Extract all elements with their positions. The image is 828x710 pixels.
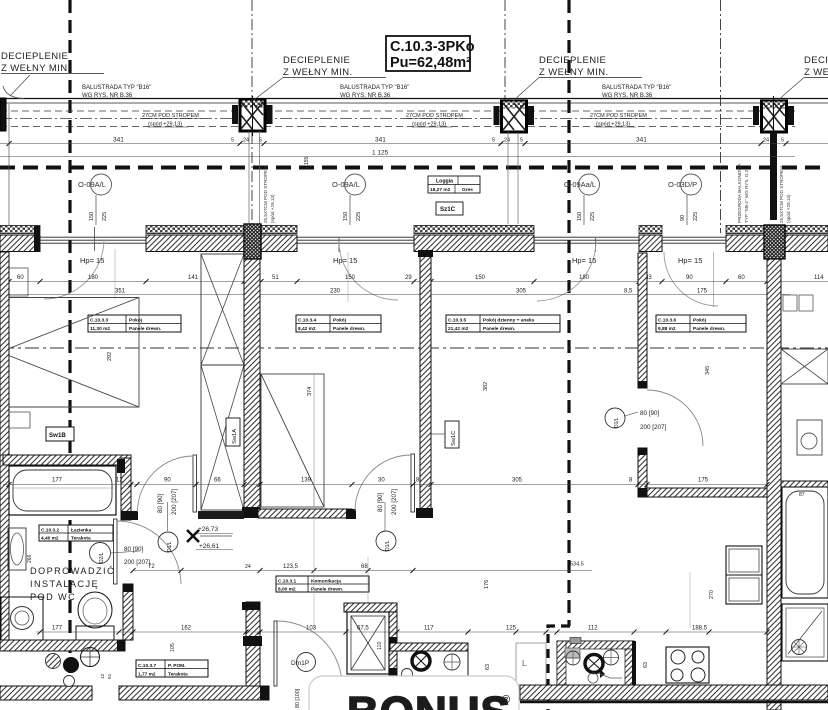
svg-text:8,5: 8,5 (624, 289, 633, 295)
svg-text:O-09A/L: O-09A/L (78, 180, 106, 189)
svg-text:Sw1C: Sw1C (451, 431, 457, 446)
svg-text:PRZEGRODA BALKONOWA: PRZEGRODA BALKONOWA (737, 163, 742, 223)
svg-text:305: 305 (512, 478, 523, 484)
svg-text:24: 24 (243, 138, 249, 144)
svg-text:200 [207]: 200 [207] (171, 488, 178, 515)
svg-text:63: 63 (643, 662, 649, 668)
svg-text:110: 110 (377, 642, 383, 650)
svg-text:67,5: 67,5 (357, 626, 369, 632)
svg-text:180: 180 (579, 275, 590, 281)
svg-text:345: 345 (705, 366, 711, 375)
svg-text:341: 341 (113, 137, 124, 144)
svg-text:63: 63 (485, 664, 491, 670)
svg-text:Hp= 15: Hp= 15 (572, 256, 596, 265)
svg-text:C.10.3.5: C.10.3.5 (448, 318, 466, 324)
svg-text:1 125: 1 125 (372, 150, 389, 157)
svg-text:9,88 m2: 9,88 m2 (658, 326, 676, 332)
svg-text:27CM POD STROPEM: 27CM POD STROPEM (142, 113, 199, 119)
svg-text:200 [207]: 200 [207] (124, 559, 151, 566)
svg-text:175: 175 (697, 289, 708, 295)
svg-text:180: 180 (88, 275, 99, 281)
svg-text:DECIEPLENIE: DECIEPLENIE (1, 51, 68, 62)
svg-text:123,5: 123,5 (283, 564, 299, 570)
svg-text:BALUSTRADA TYP "B16": BALUSTRADA TYP "B16" (602, 85, 671, 91)
svg-text:177: 177 (52, 626, 63, 632)
svg-text:(spód +29,13): (spód +29,13) (596, 122, 630, 128)
svg-text:112: 112 (588, 626, 598, 632)
svg-text:(spód +29,13): (spód +29,13) (412, 122, 446, 128)
svg-text:162: 162 (181, 626, 192, 632)
svg-text:Terakota: Terakota (168, 671, 188, 677)
svg-text:BALUSTRADA TYP "B16": BALUSTRADA TYP "B16" (340, 85, 409, 91)
svg-text:292: 292 (107, 352, 113, 361)
svg-text:Łazienka: Łazienka (71, 527, 92, 533)
svg-text:27CM POD STROPEM: 27CM POD STROPEM (590, 113, 647, 119)
svg-text:(spód +29,13): (spód +29,13) (270, 194, 275, 223)
svg-text:Pokój dzienny + aneks: Pokój dzienny + aneks (483, 318, 535, 324)
svg-text:11,30 m2: 11,30 m2 (90, 326, 110, 332)
svg-text:Z WEŁNY MIN.: Z WEŁNY MIN. (1, 63, 71, 74)
svg-text:Hp= 15: Hp= 15 (678, 256, 702, 265)
svg-text:51: 51 (107, 673, 113, 679)
svg-text:Panele drewn.: Panele drewn. (483, 326, 515, 332)
svg-text:®: ® (502, 694, 510, 706)
svg-text:BALUSTRADA TYP "B16": BALUSTRADA TYP "B16" (82, 85, 151, 91)
svg-text:C.10.3.3: C.10.3.3 (90, 318, 108, 324)
svg-text:Dm1P: Dm1P (291, 660, 309, 667)
svg-text:175: 175 (698, 478, 709, 484)
svg-text:D2/L: D2/L (99, 552, 105, 563)
svg-text:117: 117 (424, 626, 434, 632)
svg-text:12: 12 (100, 673, 106, 679)
svg-text:Z WEŁNY MIN.: Z WEŁNY MIN. (283, 67, 353, 78)
svg-text:TYP "SB-2" WG RYS. D.2: TYP "SB-2" WG RYS. D.2 (744, 169, 749, 223)
svg-text:90: 90 (164, 478, 171, 484)
svg-text:90: 90 (680, 215, 686, 221)
svg-text:Loggia: Loggia (436, 179, 453, 185)
svg-text:188,5: 188,5 (692, 626, 708, 632)
svg-text:Panele drewn.: Panele drewn. (311, 586, 343, 592)
svg-text:150: 150 (345, 275, 356, 281)
svg-text:C.10.3.6: C.10.3.6 (658, 318, 676, 324)
svg-text:27CM POD STROPEM: 27CM POD STROPEM (406, 113, 463, 119)
svg-text:139: 139 (301, 478, 312, 484)
svg-text:Hp= 15: Hp= 15 (80, 256, 104, 265)
svg-text:341: 341 (636, 137, 647, 144)
svg-text:351: 351 (115, 289, 126, 295)
svg-text:D1/L: D1/L (385, 540, 391, 551)
svg-text:150: 150 (89, 212, 95, 221)
svg-text:225: 225 (356, 212, 362, 221)
svg-text:Pokój: Pokój (129, 318, 142, 324)
svg-text:O-09A/L: O-09A/L (332, 180, 360, 189)
svg-text:230: 230 (330, 289, 341, 295)
svg-text:+26,61: +26,61 (199, 543, 219, 550)
svg-text:Z WEŁNY MIN.: Z WEŁNY MIN. (539, 67, 609, 78)
svg-text:1,77 m2: 1,77 m2 (138, 671, 156, 677)
svg-text:(spód +29,13): (spód +29,13) (786, 194, 791, 223)
svg-text:C.10.3.2: C.10.3.2 (41, 527, 59, 533)
svg-text:5: 5 (231, 138, 234, 144)
svg-text:25,5X7CM POD STROPEM: 25,5X7CM POD STROPEM (263, 166, 268, 223)
svg-text:305: 305 (516, 289, 527, 295)
svg-text:Terakota: Terakota (71, 535, 91, 541)
svg-text:BONUS: BONUS (347, 688, 511, 710)
svg-text:18,27 m2: 18,27 m2 (430, 187, 451, 193)
svg-text:90: 90 (686, 275, 693, 281)
svg-text:24: 24 (245, 564, 251, 570)
svg-text:Pokój: Pokój (333, 318, 346, 324)
svg-text:Sw1B: Sw1B (49, 432, 66, 439)
svg-text:8,42 m2: 8,42 m2 (298, 326, 316, 332)
svg-text:80 [90]: 80 [90] (640, 410, 660, 417)
svg-text:L: L (522, 658, 527, 668)
svg-text:29: 29 (405, 275, 412, 281)
svg-text:5: 5 (492, 138, 495, 144)
svg-text:Gres: Gres (462, 187, 473, 193)
svg-text:C.10.3.1: C.10.3.1 (278, 578, 296, 584)
svg-text:(spód +29,13): (spód +29,13) (148, 122, 182, 128)
svg-text:DECIEPLENIE: DECIEPLENIE (539, 55, 606, 66)
svg-text:51: 51 (272, 275, 279, 281)
svg-text:+26,73: +26,73 (198, 526, 218, 533)
svg-text:68: 68 (361, 564, 368, 570)
svg-text:5: 5 (781, 138, 784, 144)
svg-text:266: 266 (27, 554, 33, 563)
svg-text:DECIEPLENIE: DECIEPLENIE (804, 55, 828, 66)
svg-text:341: 341 (375, 137, 386, 144)
svg-text:176: 176 (484, 580, 490, 589)
svg-text:103: 103 (306, 626, 317, 632)
svg-text:374: 374 (307, 387, 313, 396)
svg-text:INSTALACJĘ: INSTALACJĘ (30, 579, 99, 589)
svg-text:12: 12 (116, 478, 123, 484)
svg-text:270: 270 (709, 590, 715, 599)
svg-text:Sz1C: Sz1C (440, 206, 456, 213)
svg-text:P. POM.: P. POM. (168, 663, 186, 669)
svg-text:225: 225 (102, 212, 108, 221)
svg-text:382: 382 (483, 382, 489, 391)
svg-text:Panele drewn.: Panele drewn. (333, 326, 365, 332)
svg-text:80 [90]: 80 [90] (157, 493, 164, 513)
svg-text:80 [90]: 80 [90] (377, 492, 384, 512)
svg-text:Hp= 15: Hp= 15 (333, 256, 357, 265)
svg-text:66: 66 (214, 478, 221, 484)
svg-text:25,5X7CM POD STROPEM: 25,5X7CM POD STROPEM (779, 166, 784, 223)
svg-text:O-09Aa/L: O-09Aa/L (564, 180, 596, 189)
svg-text:114: 114 (814, 275, 824, 281)
svg-text:72: 72 (148, 564, 155, 570)
svg-text:125: 125 (506, 626, 517, 632)
svg-text:80 [90]: 80 [90] (124, 546, 144, 553)
svg-text:Z WEŁNY: Z WEŁNY (804, 67, 828, 78)
svg-text:225: 225 (590, 212, 596, 221)
svg-text:534,5: 534,5 (570, 562, 584, 568)
svg-text:C.10.3.7: C.10.3.7 (138, 663, 156, 669)
svg-text:5: 5 (520, 138, 523, 144)
svg-text:DECIEPLENIE: DECIEPLENIE (283, 55, 350, 66)
svg-text:155: 155 (304, 156, 310, 165)
svg-text:30: 30 (378, 478, 385, 484)
svg-text:Panele drewn.: Panele drewn. (129, 326, 161, 332)
svg-text:C.10.3-3PKo: C.10.3-3PKo (390, 39, 475, 55)
svg-text:150: 150 (577, 212, 583, 221)
svg-text:225: 225 (693, 212, 699, 221)
svg-text:150: 150 (475, 275, 486, 281)
svg-text:4,40 m2: 4,40 m2 (41, 535, 59, 541)
svg-text:Pu=62,48m²: Pu=62,48m² (390, 55, 471, 71)
svg-text:60: 60 (17, 275, 24, 281)
svg-text:D1/L: D1/L (167, 541, 173, 552)
svg-text:21,42 m2: 21,42 m2 (448, 326, 469, 332)
svg-text:177: 177 (52, 478, 63, 484)
svg-text:C.10.3.4: C.10.3.4 (298, 318, 316, 324)
svg-text:24: 24 (504, 138, 510, 144)
svg-text:60: 60 (738, 275, 745, 281)
svg-text:D1/L: D1/L (614, 417, 620, 428)
svg-text:Panele drewn.: Panele drewn. (693, 326, 725, 332)
svg-text:105: 105 (170, 643, 176, 652)
svg-text:O-03D/P: O-03D/P (668, 180, 697, 189)
svg-text:DOPROWADZIĆ: DOPROWADZIĆ (30, 566, 115, 576)
svg-text:Sw1A: Sw1A (232, 429, 238, 444)
svg-text:200 [207]: 200 [207] (640, 424, 667, 431)
svg-text:8,00 m2: 8,00 m2 (278, 586, 296, 592)
svg-text:141: 141 (188, 275, 199, 281)
svg-text:200 [207]: 200 [207] (391, 488, 398, 515)
svg-text:150: 150 (343, 212, 349, 221)
svg-text:Pokój: Pokój (693, 318, 706, 324)
svg-text:87: 87 (799, 492, 805, 498)
svg-text:24: 24 (763, 138, 769, 144)
svg-text:Komunikacja: Komunikacja (311, 578, 341, 584)
svg-text:80 [100]: 80 [100] (295, 688, 301, 708)
